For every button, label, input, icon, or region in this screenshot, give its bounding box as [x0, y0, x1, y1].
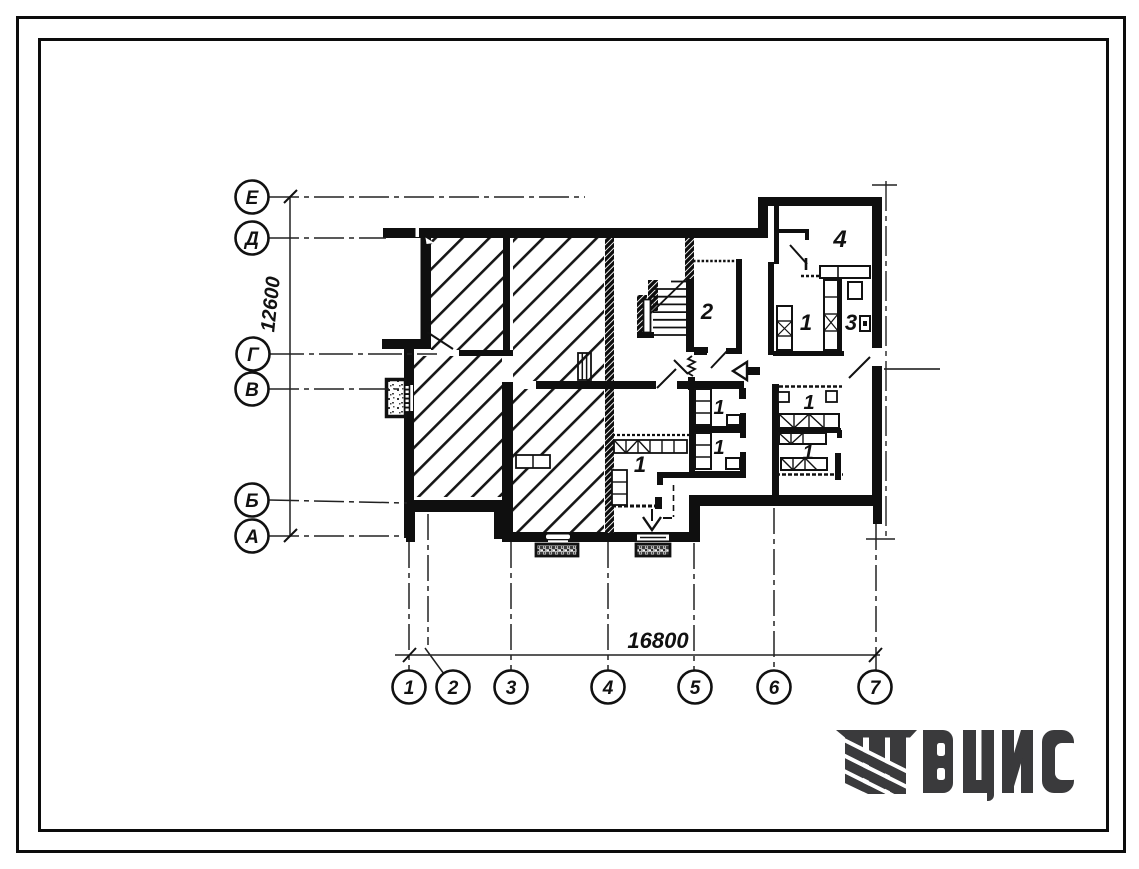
svg-text:Б: Б: [245, 491, 258, 512]
svg-text:Г: Г: [247, 345, 260, 366]
svg-text:1: 1: [803, 392, 814, 414]
svg-text:1: 1: [634, 452, 646, 477]
svg-text:1: 1: [713, 437, 724, 459]
svg-text:16800: 16800: [627, 628, 689, 653]
svg-text:3: 3: [845, 310, 857, 335]
svg-text:7: 7: [870, 678, 882, 699]
svg-text:2: 2: [447, 678, 459, 699]
svg-text:4: 4: [602, 678, 614, 699]
svg-text:А: А: [244, 527, 259, 548]
svg-text:1: 1: [713, 397, 724, 419]
svg-text:4: 4: [832, 226, 846, 253]
svg-text:1: 1: [404, 678, 415, 699]
svg-text:1: 1: [800, 310, 812, 335]
svg-text:Е: Е: [246, 188, 260, 209]
svg-text:Д: Д: [243, 229, 259, 250]
svg-text:6: 6: [769, 678, 780, 699]
svg-text:В: В: [245, 380, 259, 401]
svg-text:5: 5: [690, 678, 701, 699]
svg-text:3: 3: [506, 678, 517, 699]
svg-text:1: 1: [802, 442, 813, 464]
svg-text:2: 2: [700, 299, 714, 324]
